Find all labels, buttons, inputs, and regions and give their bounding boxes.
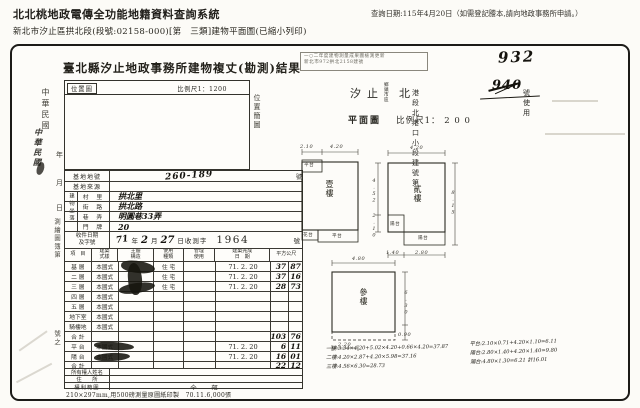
receipt-row: 收件日期 及字號 71 年 2 月 27 日收測字 1964 號 — [65, 231, 302, 248]
dim-f2-left-b: 2.10 — [371, 213, 377, 239]
floor-row: 騎樓地本國式 — [65, 321, 302, 331]
site-row: 村 里拱北里 — [65, 191, 302, 201]
unit-top: 鄉鎮 — [384, 83, 389, 93]
dim-f3-right-b: 0.90 — [398, 332, 411, 338]
source-label: 基地來源 — [65, 182, 110, 191]
floor-row: 合 計2212 — [65, 361, 302, 368]
margin-month: 月 — [56, 178, 63, 188]
location-map-side-stamp: 位置簡圖 — [252, 94, 262, 130]
town-char: 汐 — [350, 85, 361, 101]
plan-label: 平面圖 — [348, 116, 381, 126]
owner-address-row: 住 所 — [65, 375, 302, 382]
floor-row: 地下室本國式 — [65, 311, 302, 321]
query-system-page: { "header": { "system_title": "北北桃地政電傳全功… — [0, 0, 640, 408]
receipt-number: 1964 — [216, 234, 249, 246]
parcel-number-handwritten: 260-189 — [165, 171, 214, 181]
plan-scale: 比例尺1： 2 0 0 — [396, 116, 471, 126]
section-char: 北 — [399, 85, 410, 101]
site-value-handwritten: 拱北路 — [110, 202, 302, 211]
column-header: 管理使用 — [184, 249, 216, 261]
system-title: 北北桃地政電傳全功能地籍資料查詢系統 — [13, 6, 220, 22]
source-row: 基地來源 — [65, 181, 302, 191]
update-stamp-box: 一○二年度建物測量成果圖檢測更新 新北市972拱北2158建號 — [300, 52, 428, 71]
margin-year: 年 — [56, 150, 63, 160]
location-map-label: 位置圖 — [67, 83, 97, 94]
update-stamp-line2: 新北市972拱北2158建號 — [304, 60, 424, 66]
dim-f3-top: 4.80 — [352, 256, 365, 262]
location-map-box: 位置圖 比例尺1：1200 — [64, 80, 250, 170]
rights-scope-value: 全 部 — [190, 383, 222, 390]
number-suffix: 號使用 — [523, 88, 530, 118]
document-title: 臺北縣汐止地政事務所建物複丈(勘測)結果 — [63, 60, 301, 76]
receipt-month-handwritten: 2 — [141, 235, 148, 246]
floor1-corner-label: 平台 — [304, 162, 314, 168]
calc-notes-right: 平台:2.10×0.71+4.20×1.10=6.11陽台:2.80×1.40+… — [470, 337, 558, 367]
rights-scope-label: 權利範圍 — [65, 383, 110, 390]
column-header: 使用種類 — [154, 249, 184, 261]
unit-bottom: 市區 — [384, 93, 389, 103]
calc-notes-left: 一樓:3.34×4.20+5.02×4.20+0.66×4.20=37.87二樓… — [326, 343, 449, 372]
receipt-label-1: 收件日期 — [76, 233, 98, 240]
receipt-year-handwritten: 71 — [115, 234, 129, 246]
floor3-label: 參樓 — [358, 288, 369, 306]
receipt-day-label: 日收測字 — [177, 235, 207, 245]
rights-scope-row: 權利範圍 全 部 — [65, 382, 302, 390]
column-header: 建築式樣 — [92, 249, 119, 261]
margin-no-suffix: 號之 — [52, 330, 61, 347]
dim-f3-right: 6.30 — [403, 290, 409, 316]
site-value-handwritten: 20 — [110, 222, 302, 231]
site-value-handwritten: 明圓巷33弄 — [110, 212, 302, 221]
margin-era-printed: 中華民國 — [40, 88, 51, 132]
receipt-month-label: 月 — [151, 235, 158, 245]
floor-row: 四 層本國式 — [65, 291, 302, 301]
site-row: 門 牌20 — [65, 221, 302, 231]
scan-artifact-line — [552, 100, 598, 102]
floor2-label: 貳樓 — [412, 185, 423, 203]
floor-row: 基 層本國式住 宅71. 2. 203787 — [65, 261, 302, 271]
dim-f2-bot-b: 2.80 — [415, 250, 428, 256]
column-header: 主體構造 — [118, 249, 154, 261]
floor-row: 合 計10376 — [65, 331, 302, 341]
owner-name-row: 所有權人姓名 — [65, 368, 302, 375]
dim-f2-top: 4.20 — [410, 145, 423, 151]
dim-f1-b: 4.20 — [330, 144, 343, 150]
floor-row: 五 層本國式 — [65, 301, 302, 311]
floors-header-row: 項 目建築式樣主體構造使用種類管理使用建築完成日 期平方公尺 — [65, 248, 302, 261]
query-date: 查詢日期:115年4月20日（如需登記謄本,請向地政事務所申請。） — [371, 9, 582, 19]
location-map-header-rule — [65, 94, 249, 95]
floor-row: 二 層本國式住 宅71. 2. 203716 — [65, 271, 302, 281]
survey-form-table: 基地地號 260-189 號 基地來源 建物坐落 村 里拱北里街 路拱北路巷 弄… — [64, 170, 303, 389]
site-row: 巷 弄明圓巷33弄 — [65, 211, 302, 221]
floor2-notch-label: 陽台 — [390, 221, 400, 227]
scan-artifact-line — [545, 133, 625, 135]
floor2-strip-label: 陽台 — [418, 235, 428, 241]
town-char: 止 — [367, 85, 378, 101]
margin-day: 日 — [56, 203, 63, 213]
dim-f2-right: 8.15 — [450, 190, 456, 216]
floor1-planter-label: 花台 — [303, 232, 313, 238]
unit-label: 鄉鎮 市區 — [384, 83, 389, 103]
column-header: 建築完成日 期 — [215, 249, 270, 261]
floor1-strip-label: 平台 — [332, 233, 342, 239]
receipt-day-handwritten: 27 — [161, 235, 175, 246]
dim-f2-left-a: 4.52 — [371, 178, 377, 204]
margin-book-no: 測繪圖簿第 — [52, 218, 61, 260]
page-subtitle: 新北市汐止區拱北段(段號:02158-000)[第 三類]建物平面圖(已縮小列印… — [13, 25, 307, 37]
floor1-label: 壹樓 — [324, 180, 335, 198]
form-footer-note: 210×297mm,用500磅測量原圖紙印製 70.11.6,000張 — [66, 390, 231, 399]
location-map-scale: 比例尺1：1200 — [177, 84, 227, 93]
site-row: 街 路拱北路 — [65, 201, 302, 211]
floor-row: 三 層本國式住 宅71. 2. 202873 — [65, 281, 302, 291]
receipt-label-2: 及字號 — [79, 240, 96, 247]
dim-f1-a: 2.10 — [300, 144, 313, 150]
site-value-handwritten: 拱北里 — [110, 192, 302, 201]
parcel-label: 基地地號 — [65, 171, 110, 181]
parcel-row: 基地地號 260-189 號 — [65, 171, 302, 181]
page-number-handwritten: 932 — [498, 47, 536, 66]
column-header: 項 目 — [65, 249, 92, 261]
plan-scale-line: 平面圖 比例尺1： 2 0 0 — [348, 108, 471, 127]
receipt-year-label: 年 — [132, 235, 139, 245]
dim-f2-bot-a: 1.40 — [386, 250, 399, 256]
